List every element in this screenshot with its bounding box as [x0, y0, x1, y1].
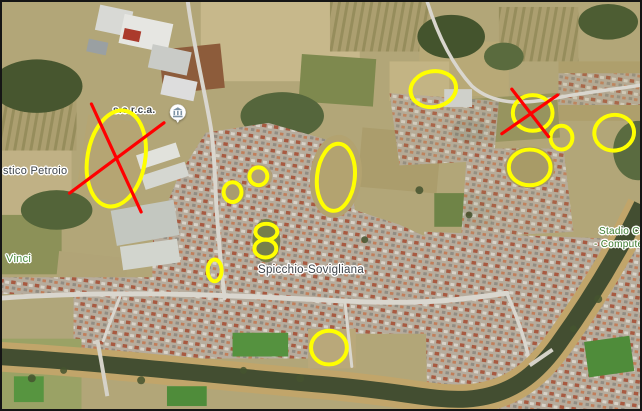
highlight-ellipse-5 [592, 112, 636, 153]
highlight-ellipse-13 [311, 331, 347, 365]
highlight-ellipse-12 [208, 259, 222, 281]
highlight-ellipse-7 [314, 142, 359, 213]
annotation-layer [2, 2, 640, 409]
highlight-ellipse-6 [509, 150, 551, 186]
cross-mark-1-line-2 [70, 123, 164, 193]
highlight-ellipse-9 [224, 182, 242, 202]
highlight-ellipse-2 [408, 68, 459, 111]
highlight-ellipse-8 [249, 167, 267, 185]
highlight-ellipse-11 [254, 240, 276, 258]
highlight-ellipse-4 [551, 126, 573, 150]
cross-mark-2-line-2 [502, 95, 558, 134]
annotated-satellite-map-figure: s.e.r.c.a.stico PetroioVinciSpicchio-Sov… [0, 0, 642, 411]
highlight-ellipse-10 [255, 224, 277, 240]
